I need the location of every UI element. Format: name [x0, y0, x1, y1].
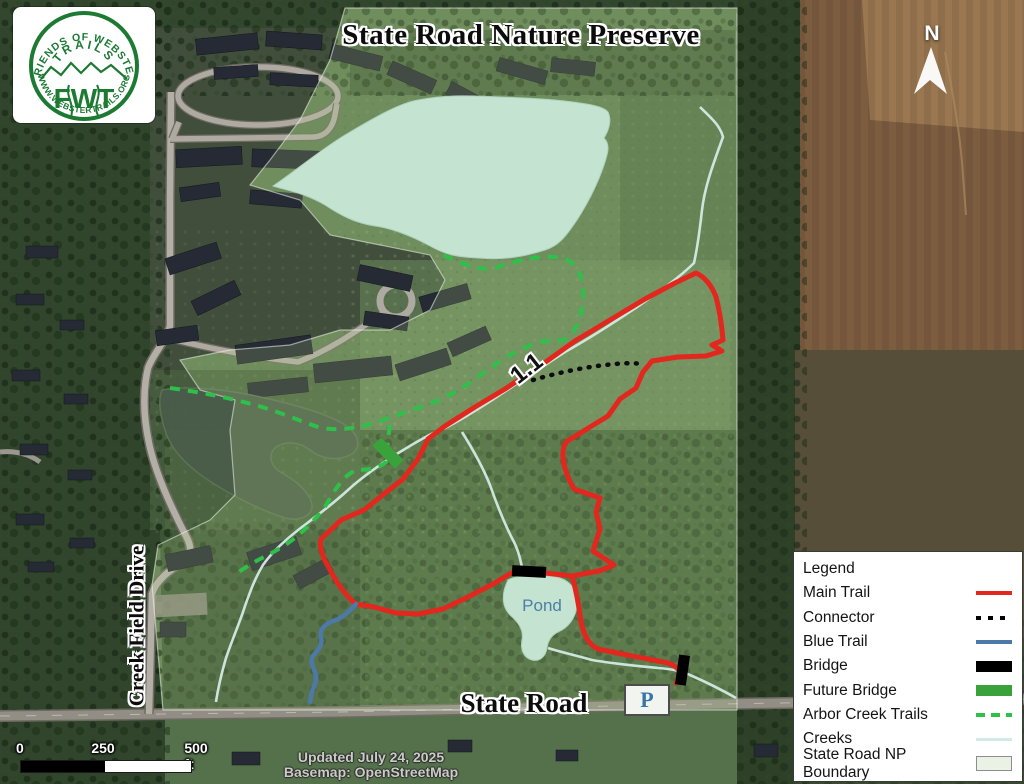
north-arrow-icon — [912, 46, 952, 98]
bridge-swatch — [976, 661, 1012, 672]
legend-item: Blue Trail — [803, 631, 1012, 654]
boundary-swatch — [976, 756, 1012, 771]
legend-header-row: Legend — [803, 558, 1012, 581]
legend-header: Legend — [803, 560, 855, 578]
scale-bar-graphic — [20, 760, 192, 773]
creek-field-drive-label: Creek Field Drive — [125, 546, 150, 707]
scale-tick-0: 0 — [16, 740, 24, 756]
legend-item: Main Trail — [803, 582, 1012, 605]
fwt-logo-emblem: FRIENDS OF WEBSTER TRAILS FWT WWW.WEBSTE… — [13, 7, 155, 123]
main-trail-swatch — [976, 591, 1012, 595]
bridge-pond — [512, 565, 547, 578]
updated-date: Updated July 24, 2025 — [271, 750, 471, 765]
fwt-logo: FRIENDS OF WEBSTER TRAILS FWT WWW.WEBSTE… — [13, 7, 155, 123]
blue-trail-swatch — [976, 640, 1012, 644]
legend-item: Bridge — [803, 655, 1012, 678]
map-title: State Road Nature Preserve — [342, 19, 699, 52]
state-road-label: State Road — [461, 688, 588, 719]
legend-item: Arbor Creek Trails — [803, 704, 1012, 727]
legend-item: Future Bridge — [803, 679, 1012, 702]
pond-label: Pond — [522, 596, 562, 616]
parking-sign-letter: P — [640, 689, 653, 711]
future-bridge-swatch — [976, 685, 1012, 696]
north-label: N — [912, 22, 952, 46]
legend-item: Connector — [803, 606, 1012, 629]
scale-tick-250: 250 — [91, 740, 114, 756]
connector-swatch — [976, 616, 1012, 620]
creeks-swatch — [976, 738, 1012, 741]
legend-item: State Road NP Boundary — [803, 752, 1012, 775]
map: FRIENDS OF WEBSTER TRAILS FWT WWW.WEBSTE… — [0, 0, 1024, 784]
scale-bar-white-segment — [105, 761, 191, 772]
basemap-credit: Basemap: OpenStreetMap — [271, 765, 471, 780]
logo-mountains — [41, 63, 127, 79]
legend: Legend Main Trail Connector Blue Trail B… — [793, 551, 1023, 782]
parking-sign: P — [624, 684, 670, 716]
attribution: Updated July 24, 2025 Basemap: OpenStree… — [271, 750, 471, 780]
north-arrow: N — [912, 22, 952, 98]
arbor-creek-swatch — [976, 713, 1012, 717]
scale-bar-black-segment — [21, 761, 105, 772]
